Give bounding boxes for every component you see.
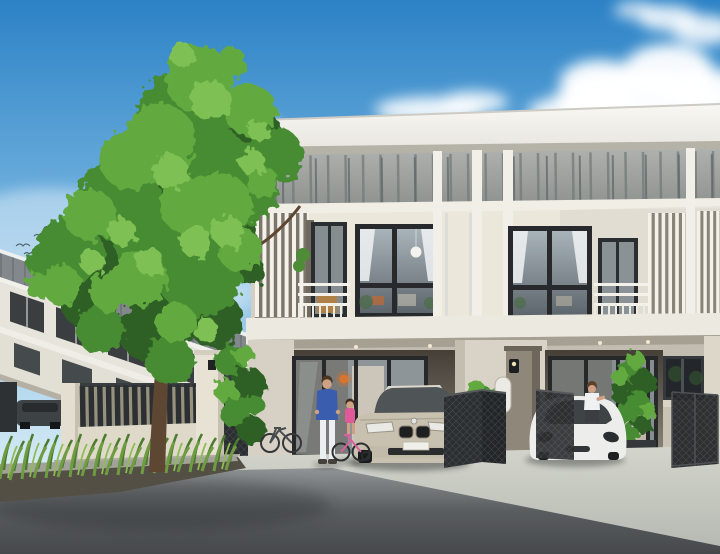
- bedroom-window-unit2: [508, 226, 592, 320]
- pendant-lamp: [411, 247, 422, 258]
- architectural-rendering: [0, 0, 720, 554]
- parked-dark-car: [16, 400, 66, 429]
- louver-balcony-unit3-partial: [697, 211, 720, 318]
- bedroom-window-unit1: [355, 224, 441, 318]
- license-plate: [403, 442, 429, 450]
- orange-wall-lamp: [340, 375, 349, 384]
- louver-balcony-unit2: [648, 213, 686, 318]
- scene-canvas: [0, 0, 720, 554]
- car-badge: [411, 418, 417, 424]
